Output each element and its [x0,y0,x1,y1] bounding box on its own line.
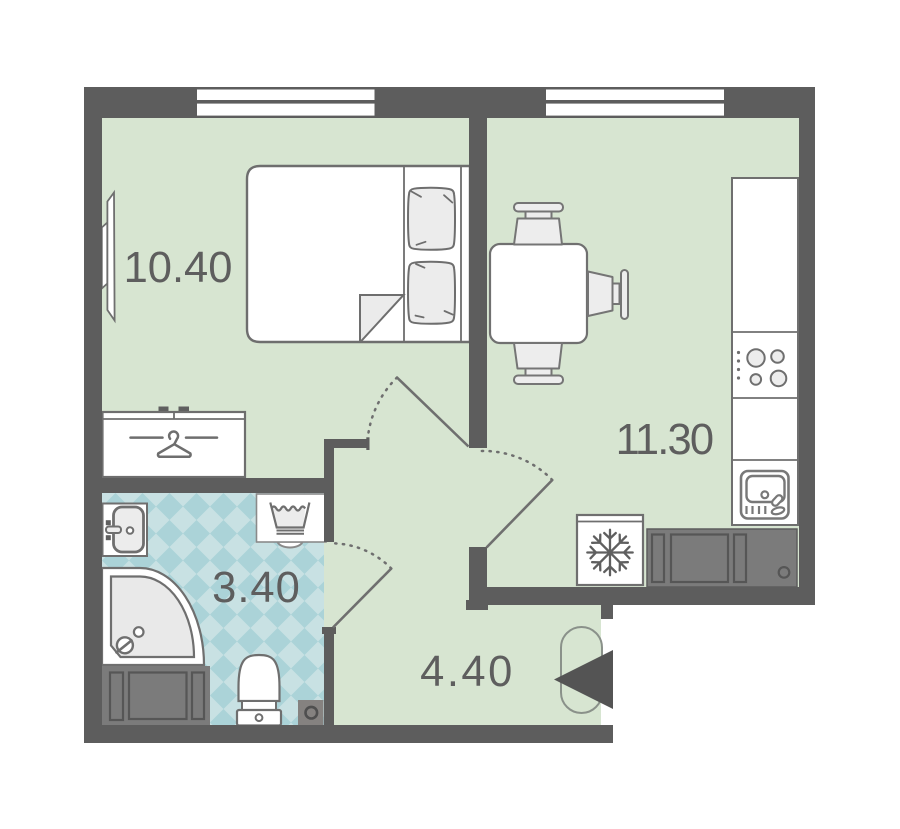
svg-text:4.40: 4.40 [420,648,515,696]
svg-text:10.40: 10.40 [124,244,233,292]
svg-text:11.30: 11.30 [616,416,713,464]
svg-text:3.40: 3.40 [212,564,301,612]
